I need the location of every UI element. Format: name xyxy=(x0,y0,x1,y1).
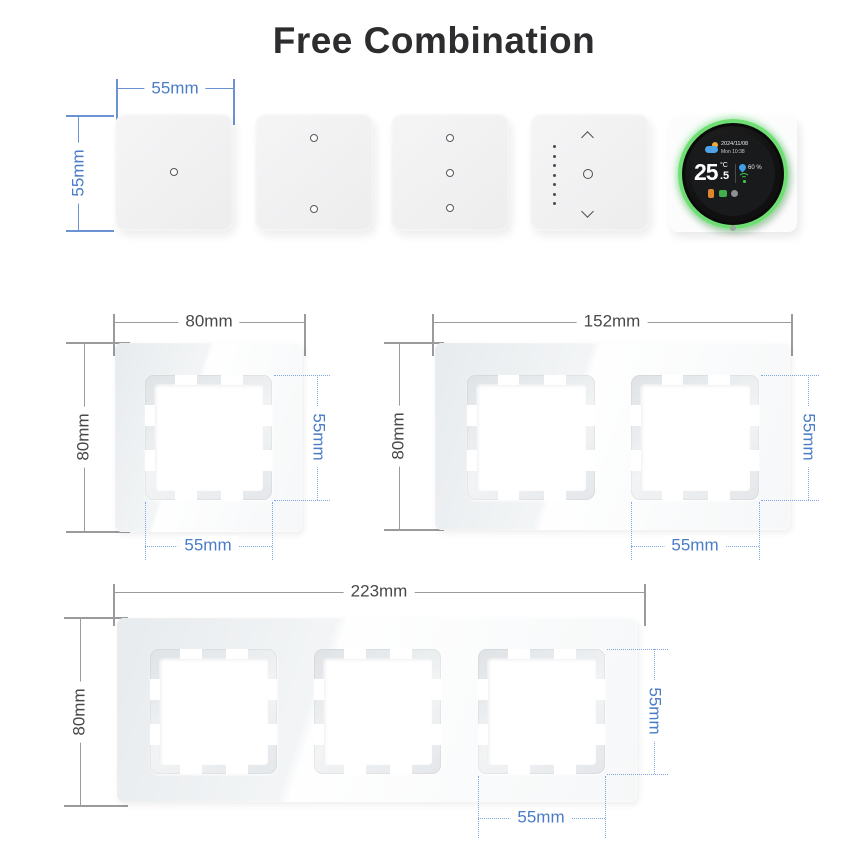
page-title: Free Combination xyxy=(0,20,868,62)
wifi-icon xyxy=(743,180,746,183)
clip-notch xyxy=(467,450,477,471)
touch-dot-icon xyxy=(446,169,454,177)
opening-inner xyxy=(476,384,586,491)
chevron-down-icon xyxy=(581,205,594,218)
heating-icon xyxy=(708,189,714,198)
frame-opening xyxy=(145,375,272,500)
clip-notch xyxy=(595,724,605,745)
ext-line xyxy=(607,774,668,775)
ext-line xyxy=(605,776,606,838)
clip-notch xyxy=(431,724,441,745)
ext-line xyxy=(478,776,479,838)
single-opening-height-label: 55mm xyxy=(308,406,329,467)
dim-tick xyxy=(113,584,115,626)
module-width-label: 55mm xyxy=(144,79,205,100)
dim-tick xyxy=(384,342,444,344)
dim-tick xyxy=(644,584,646,626)
thermostat-unit: °C xyxy=(720,162,728,169)
thermostat-time: Mon 10:38 xyxy=(721,150,745,155)
clip-notch xyxy=(467,405,477,426)
dim-tick xyxy=(66,115,114,117)
triple-opening-height-label: 55mm xyxy=(644,680,665,741)
clip-notch xyxy=(344,764,366,774)
cloud-icon xyxy=(705,146,718,153)
clip-notch xyxy=(595,679,605,700)
opening-inner xyxy=(487,658,596,765)
ext-line xyxy=(145,502,146,560)
clip-notch xyxy=(585,405,595,426)
clip-notch xyxy=(145,450,155,471)
ext-line xyxy=(607,649,668,650)
triple-opening-width-label: 55mm xyxy=(510,808,571,829)
opening-inner xyxy=(154,384,263,491)
clip-notch xyxy=(708,375,730,385)
dimmer-level-dot xyxy=(553,202,556,205)
clip-notch xyxy=(478,724,488,745)
thermostat-temperature: 25 xyxy=(694,161,718,184)
double-frame-height-label: 80mm xyxy=(389,405,410,466)
touch-dot-icon xyxy=(170,168,178,176)
clip-notch xyxy=(226,764,248,774)
single-frame xyxy=(115,343,302,532)
clip-notch xyxy=(390,649,412,659)
clip-notch xyxy=(631,450,641,471)
clip-notch xyxy=(262,405,272,426)
dimmer-level-dot xyxy=(553,193,556,196)
dimmer-level-dot xyxy=(553,145,556,148)
clip-notch xyxy=(662,490,684,500)
clip-notch xyxy=(554,764,576,774)
clip-notch xyxy=(267,724,277,745)
thermostat-fraction: .5 xyxy=(720,171,729,182)
clip-notch xyxy=(498,375,520,385)
touch-dot-icon xyxy=(446,204,454,212)
clip-notch xyxy=(314,679,324,700)
frame-opening xyxy=(478,649,605,774)
clip-notch xyxy=(544,490,566,500)
clip-notch xyxy=(478,679,488,700)
single-frame-height-label: 80mm xyxy=(74,406,95,467)
dimmer-level-dot xyxy=(553,174,556,177)
clip-notch xyxy=(262,450,272,471)
dim-tick xyxy=(64,617,128,619)
sensor-dot xyxy=(730,225,736,231)
thermostat-humidity: 60 % xyxy=(748,165,762,171)
clip-notch xyxy=(508,764,530,774)
triple-frame-height-label: 80mm xyxy=(70,681,91,742)
clip-notch xyxy=(390,764,412,774)
frame-opening xyxy=(631,375,759,500)
clip-notch xyxy=(749,450,759,471)
clip-notch xyxy=(145,405,155,426)
free-combination-diagram: Free Combination 55mm 55mm 2024/11/08 M xyxy=(0,0,868,868)
clip-notch xyxy=(175,375,197,385)
clip-notch xyxy=(508,649,530,659)
ext-line xyxy=(761,375,819,376)
clip-notch xyxy=(554,649,576,659)
power-icon xyxy=(731,190,738,197)
single-opening-width-label: 55mm xyxy=(177,536,238,557)
switch-module-1gang xyxy=(115,114,233,231)
clip-notch xyxy=(344,649,366,659)
touch-dot-icon xyxy=(310,205,318,213)
switch-module-3gang xyxy=(391,114,509,231)
opening-inner xyxy=(323,658,432,765)
opening-inner xyxy=(159,658,268,765)
clip-notch xyxy=(267,679,277,700)
dimmer-level-dot xyxy=(553,164,556,167)
ext-line xyxy=(759,502,760,560)
touch-dot-icon xyxy=(446,134,454,142)
thermostat-date: 2024/11/08 xyxy=(721,142,748,148)
ext-line xyxy=(272,502,273,560)
ext-line xyxy=(274,500,330,501)
clip-notch xyxy=(175,490,197,500)
triple-frame-width-label: 223mm xyxy=(344,582,415,603)
double-frame-width-label: 152mm xyxy=(577,312,648,333)
clip-notch xyxy=(708,490,730,500)
chevron-up-icon xyxy=(581,131,594,144)
frame-opening xyxy=(467,375,595,500)
double-frame xyxy=(435,343,790,530)
touch-ring-icon xyxy=(583,169,593,179)
single-frame-width-label: 80mm xyxy=(178,312,239,333)
ext-line xyxy=(631,502,632,560)
dimmer-level-dot xyxy=(553,183,556,186)
double-opening-height-label: 55mm xyxy=(798,406,819,467)
module-height-label: 55mm xyxy=(69,142,90,203)
triple-frame xyxy=(117,618,637,802)
dim-tick xyxy=(233,79,235,125)
clip-notch xyxy=(180,764,202,774)
clip-notch xyxy=(749,405,759,426)
clip-notch xyxy=(180,649,202,659)
dimmer-level-dot xyxy=(553,155,556,158)
switch-module-2gang xyxy=(255,114,373,231)
dim-tick xyxy=(432,314,434,356)
clip-notch xyxy=(221,375,243,385)
clip-notch xyxy=(314,724,324,745)
screen-divider xyxy=(735,164,736,183)
touch-dot-icon xyxy=(310,134,318,142)
double-opening-width-label: 55mm xyxy=(664,536,725,557)
frame-opening xyxy=(150,649,277,774)
dim-tick xyxy=(384,529,444,531)
clip-notch xyxy=(662,375,684,385)
clip-notch xyxy=(221,490,243,500)
dim-tick xyxy=(64,805,128,807)
clip-notch xyxy=(631,405,641,426)
opening-inner xyxy=(640,384,750,491)
schedule-icon xyxy=(719,190,727,197)
clip-notch xyxy=(226,649,248,659)
dim-tick xyxy=(791,314,793,356)
clip-notch xyxy=(498,490,520,500)
ext-line xyxy=(274,375,330,376)
dim-tick xyxy=(66,230,114,232)
ext-line xyxy=(761,500,819,501)
frame-opening xyxy=(314,649,441,774)
dimmer-module xyxy=(530,114,649,231)
clip-notch xyxy=(585,450,595,471)
clip-notch xyxy=(150,679,160,700)
clip-notch xyxy=(150,724,160,745)
clip-notch xyxy=(544,375,566,385)
clip-notch xyxy=(431,679,441,700)
dim-tick xyxy=(304,314,306,356)
